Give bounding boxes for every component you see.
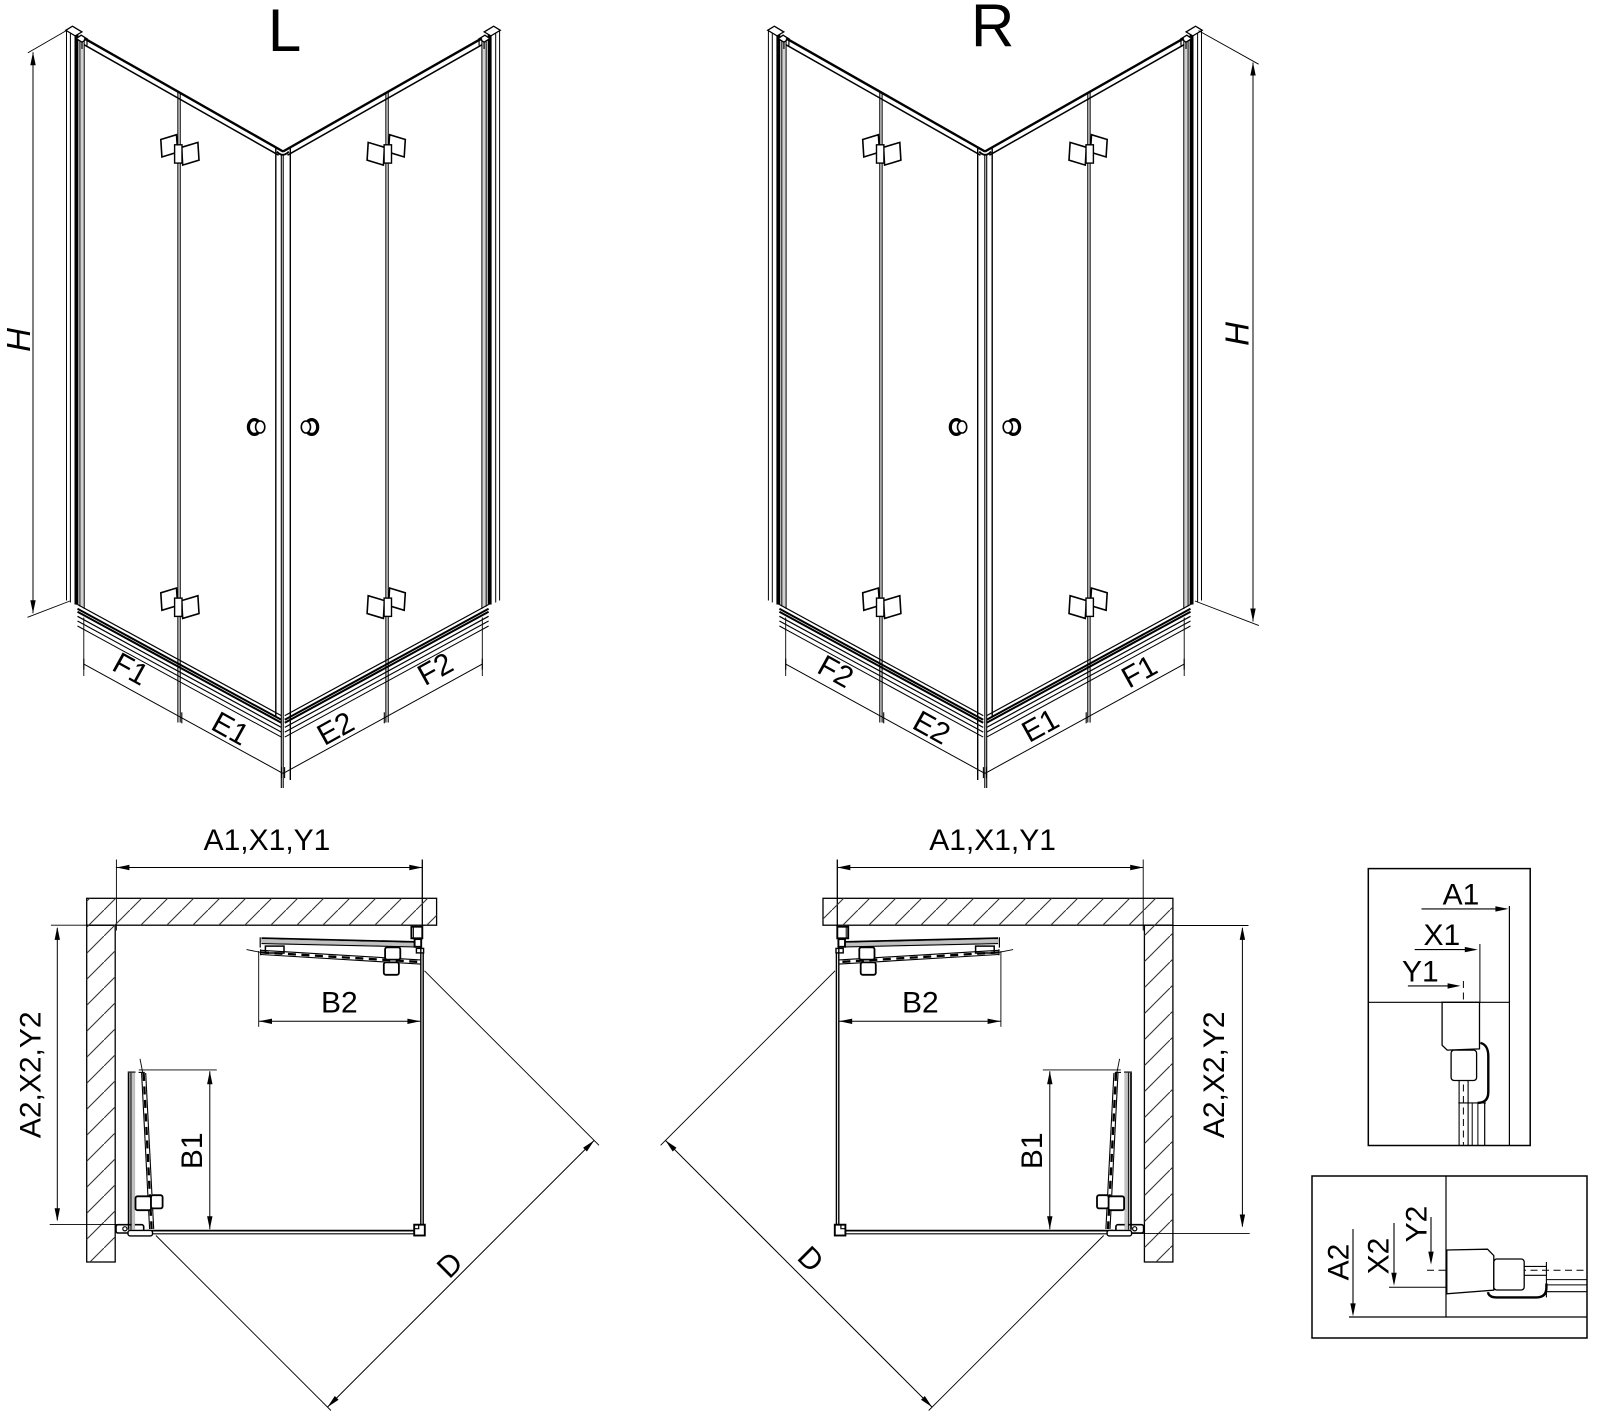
svg-text:A2: A2: [1323, 1244, 1356, 1281]
svg-text:B2: B2: [321, 987, 358, 1020]
svg-text:X2: X2: [1363, 1238, 1396, 1275]
svg-text:A1,X1,Y1: A1,X1,Y1: [204, 824, 331, 857]
svg-text:B2: B2: [902, 987, 939, 1020]
svg-text:A1,X1,Y1: A1,X1,Y1: [929, 824, 1056, 857]
svg-text:R: R: [971, 0, 1014, 60]
svg-text:H: H: [1218, 322, 1255, 346]
svg-text:Y1: Y1: [1402, 956, 1439, 989]
svg-text:H: H: [0, 328, 37, 352]
svg-text:L: L: [268, 0, 301, 64]
svg-text:B1: B1: [1016, 1132, 1049, 1169]
svg-text:A2,X2,Y2: A2,X2,Y2: [14, 1011, 47, 1138]
svg-text:A1: A1: [1443, 878, 1480, 911]
svg-text:A2,X2,Y2: A2,X2,Y2: [1198, 1011, 1231, 1138]
svg-text:X1: X1: [1424, 919, 1461, 952]
svg-text:B1: B1: [176, 1132, 209, 1169]
svg-text:Y2: Y2: [1401, 1206, 1434, 1243]
